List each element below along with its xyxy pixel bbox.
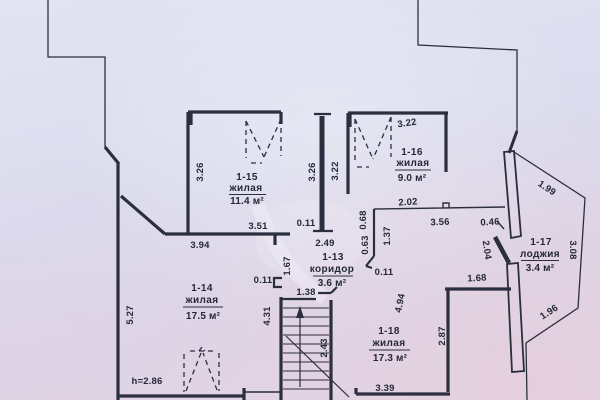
dim-corridor-right-gap: 0.11 bbox=[375, 267, 394, 278]
dim-r15-left: 3.26 bbox=[195, 162, 206, 181]
dim-corridor-left-gap: 0.11 bbox=[254, 275, 273, 286]
room-label-1-16: 1-16 жилая 9.0 м² bbox=[395, 147, 431, 184]
room-area: 17.3 м² bbox=[373, 353, 408, 364]
dim-loggia-door: 2.04 bbox=[480, 240, 494, 261]
floor-plan-photo: 1-15 жилая 11.4 м² 1-16 жилая 9.0 м² 1-1… bbox=[0, 0, 600, 400]
dim-r18-upper-right: 1.68 bbox=[467, 273, 487, 285]
room-type: жилая bbox=[396, 158, 430, 169]
building-outline bbox=[48, 0, 585, 400]
dim-r18-top-right: 0.46 bbox=[480, 216, 500, 228]
room-id: 1-13 bbox=[322, 252, 344, 263]
window-symbol-room-1-16-icon bbox=[355, 117, 391, 167]
staircase bbox=[283, 306, 349, 397]
room-area: 17.5 м² bbox=[186, 311, 221, 322]
room-label-1-14: 1-14 жилая 17.5 м² bbox=[183, 283, 223, 322]
dim-pier-right: 3.22 bbox=[330, 161, 341, 180]
room-area: 9.0 м² bbox=[398, 173, 427, 184]
dim-wall-063: 0.63 bbox=[360, 235, 371, 254]
room-label-1-15: 1-15 жилая 11.4 м² bbox=[229, 172, 267, 207]
wardrobe-symbol-room-1-14-icon bbox=[184, 347, 219, 392]
dim-r15-gap: 0.11 bbox=[297, 218, 316, 229]
floor-plan-drawing: 1-15 жилая 11.4 м² 1-16 жилая 9.0 м² 1-1… bbox=[0, 0, 600, 400]
window-symbol-room-1-15-icon bbox=[246, 119, 281, 163]
room-area: 11.4 м² bbox=[230, 196, 264, 207]
dim-r18-right: 2.87 bbox=[437, 326, 448, 345]
dim-corridor-left-height: 1.67 bbox=[282, 256, 293, 275]
ceiling-height-note: h=2.86 bbox=[131, 376, 162, 387]
dim-r15-bottom: 3.51 bbox=[248, 221, 268, 232]
dim-wall-137: 1.37 bbox=[382, 226, 393, 245]
room-area: 3.6 м² bbox=[318, 278, 347, 289]
room-id: 1-15 bbox=[236, 172, 258, 183]
stair-break-line bbox=[286, 336, 349, 397]
room-type: жилая bbox=[372, 338, 406, 349]
dim-pier-left: 3.26 bbox=[307, 162, 318, 181]
dim-stair-left: 4.31 bbox=[262, 306, 273, 326]
room-label-1-17: 1-17 лоджия 3.4 м² bbox=[520, 237, 560, 274]
balcony-door-leaf-icon bbox=[495, 237, 509, 263]
dim-r14-top: 3.94 bbox=[190, 240, 210, 251]
room-area: 3.4 м² bbox=[526, 263, 555, 274]
room-type: коридор bbox=[310, 264, 355, 275]
room-type: жилая bbox=[185, 295, 219, 306]
dim-loggia-top: 1.99 bbox=[536, 178, 558, 198]
loggia-corner bbox=[509, 131, 517, 153]
room-type: жилая bbox=[229, 183, 263, 194]
dim-r16-bottom: 2.02 bbox=[398, 196, 418, 208]
dim-r18-left: 4.94 bbox=[393, 292, 408, 314]
dim-stair-right: 2.43 bbox=[319, 338, 330, 357]
room-label-1-18: 1-18 жилая 17.3 м² bbox=[369, 326, 410, 364]
room-id: 1-14 bbox=[191, 283, 213, 294]
room-id: 1-17 bbox=[530, 237, 552, 248]
room-id: 1-16 bbox=[401, 147, 423, 158]
loggia-wall-upper bbox=[504, 151, 521, 238]
room-id: 1-18 bbox=[378, 326, 400, 337]
dim-r14-left: 5.27 bbox=[125, 305, 136, 324]
dim-r18-bottom: 3.39 bbox=[375, 383, 394, 394]
dim-wall-068: 0.68 bbox=[358, 210, 369, 229]
dim-loggia-bottom: 1.96 bbox=[538, 303, 560, 323]
dim-stair-width: 1.38 bbox=[296, 287, 315, 298]
room-type: лоджия bbox=[520, 249, 560, 260]
dim-r18-top: 3.56 bbox=[430, 217, 450, 229]
loggia-wall-lower bbox=[507, 263, 524, 372]
dim-corridor-top: 2.49 bbox=[315, 238, 334, 249]
dim-r16-top: 3.22 bbox=[397, 117, 418, 131]
dim-loggia-right: 3.08 bbox=[567, 240, 578, 259]
